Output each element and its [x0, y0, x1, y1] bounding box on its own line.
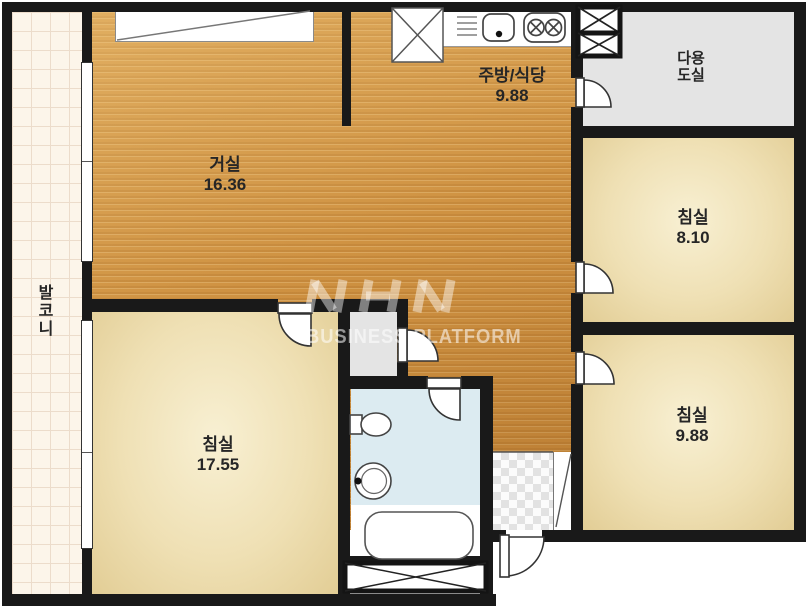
utility-label: 다용 도실 [661, 50, 721, 84]
watermark-logo [309, 280, 451, 312]
bathroom-duct-icon [345, 563, 486, 591]
bathtub-icon [365, 512, 473, 559]
utility-duct-icon [578, 7, 620, 56]
bathroom-door-leaf [427, 378, 461, 388]
stove-icon [524, 13, 565, 42]
bedroom-right-top-door-leaf [576, 262, 584, 293]
balcony-label: 발코니 [33, 276, 53, 346]
fixtures-layer [0, 0, 808, 613]
sink-icon [355, 463, 392, 499]
kitchen-label: 주방/식당 9.88 [458, 66, 566, 106]
utility-door-arc [584, 80, 611, 107]
living-label: 거실 16.36 [185, 155, 265, 195]
bedroom-left-label: 침실 17.55 [178, 435, 258, 475]
bedroom-right-top-door-arc [584, 264, 613, 293]
bedroom-right-bottom-door-arc [584, 354, 614, 384]
toilet-icon [350, 413, 391, 436]
watermark-text: BUSINESS PLATFORM [306, 326, 522, 349]
entrance-cabinet-lines [493, 452, 571, 527]
kitchen-sink-icon [483, 14, 514, 41]
utility-door-leaf [576, 78, 584, 107]
counter-hatch-icon [457, 17, 477, 35]
bedroom-right-bottom-label: 침실 9.88 [654, 406, 730, 446]
entrance-door-leaf [500, 535, 509, 577]
bathroom-door-arc [429, 389, 460, 420]
floorplan-canvas: 거실 16.36 주방/식당 9.88 다용 도실 침실 8.10 침실 9.8… [0, 0, 808, 613]
bedroom-right-top-label: 침실 8.10 [655, 208, 731, 248]
entrance-door-arc [505, 537, 544, 576]
bedroom-right-bottom-door-leaf [576, 352, 584, 384]
wardrobe-diagonal [117, 11, 310, 40]
fridge-icon [392, 8, 443, 62]
